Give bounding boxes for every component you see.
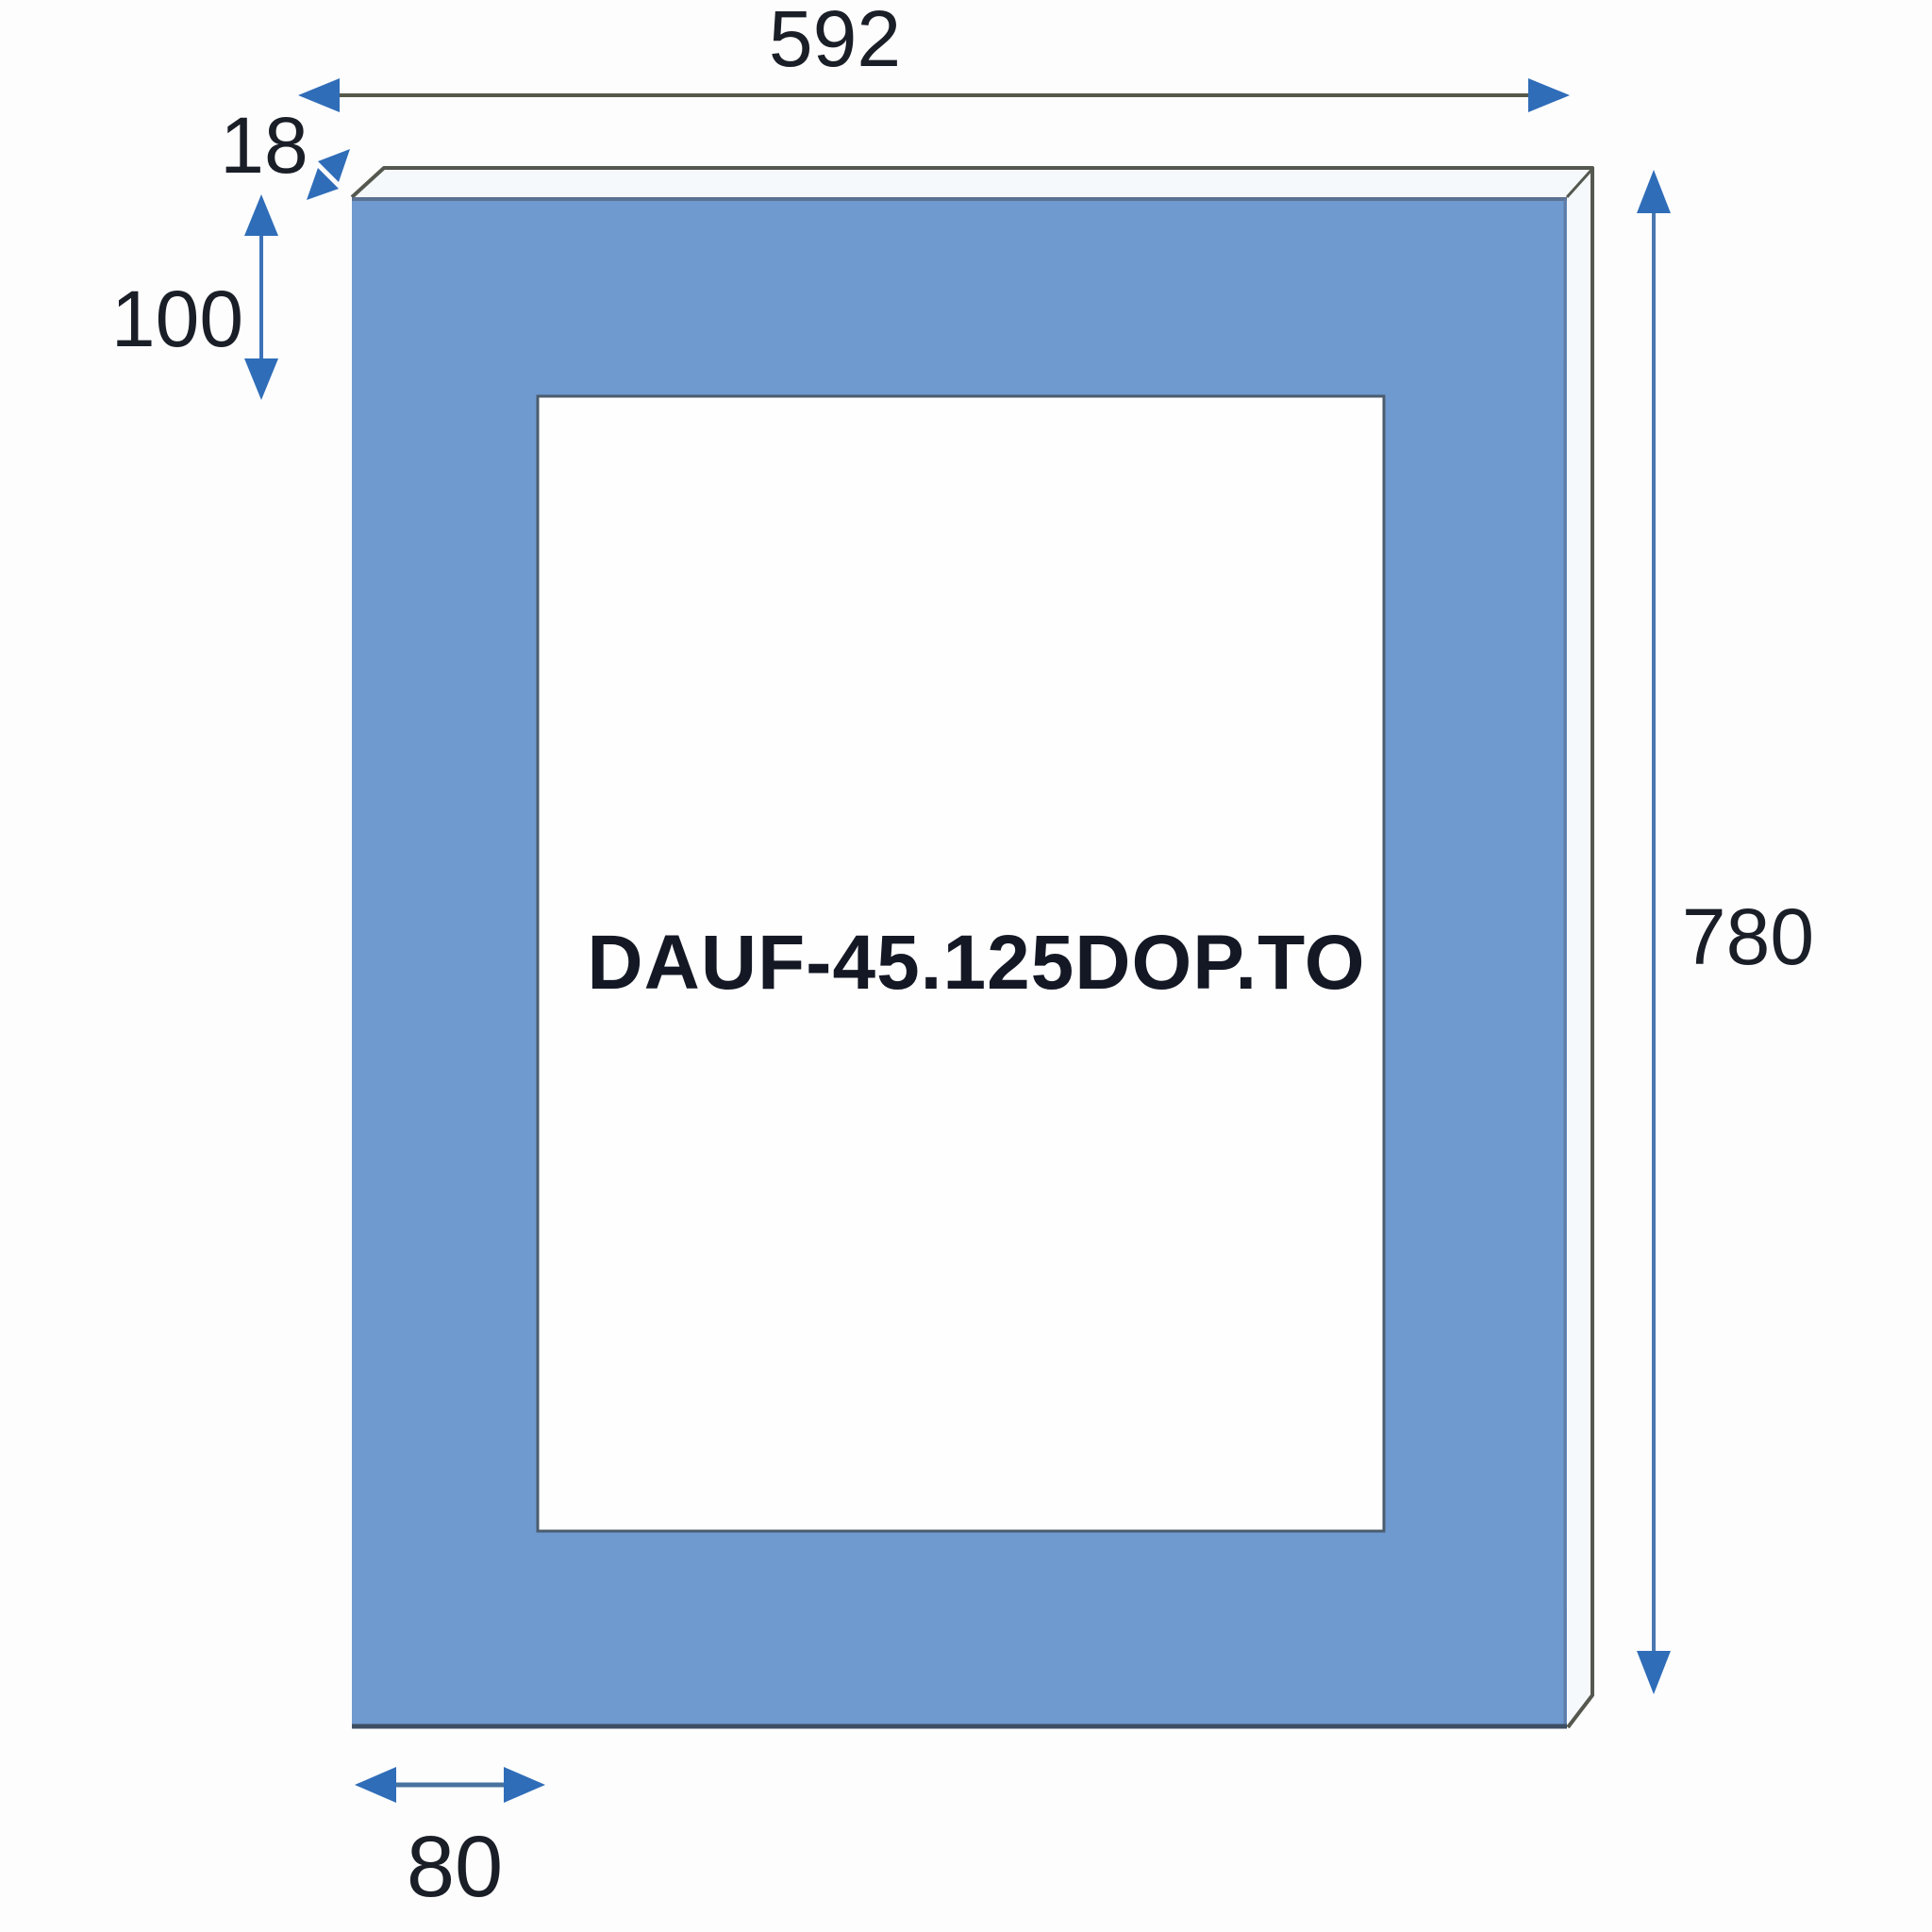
panel-right-edge-face	[1567, 168, 1594, 1728]
dim-label-592: 592	[769, 0, 901, 83]
arrowhead-down-icon	[244, 358, 278, 400]
dim-label-780: 780	[1682, 892, 1814, 981]
dimension-left-stile: 80	[355, 1767, 545, 1915]
diagram-canvas: DAUF-45.125DOP.TO 592 18 100 780	[0, 0, 1932, 1932]
dim-label-18: 18	[220, 101, 308, 190]
part-number-label: DAUF-45.125DOP.TO	[587, 920, 1365, 1006]
dim-label-80: 80	[407, 1819, 503, 1915]
dim-label-100: 100	[111, 275, 243, 363]
dimension-overall-height: 780	[1637, 170, 1814, 1694]
dimension-overall-width: 592	[298, 0, 1570, 112]
arrowhead-up-icon	[244, 194, 278, 236]
dimension-edge-thickness: 18	[220, 101, 350, 200]
arrowhead-left-icon	[355, 1767, 396, 1803]
panel: DAUF-45.125DOP.TO	[352, 168, 1594, 1728]
arrowhead-right-icon	[504, 1767, 545, 1803]
arrowhead-down-icon	[1637, 1651, 1671, 1694]
dimension-top-rail: 100	[111, 194, 278, 400]
technical-drawing: DAUF-45.125DOP.TO 592 18 100 780	[0, 0, 1932, 1932]
arrowhead-right-icon	[1528, 78, 1570, 112]
arrowhead-up-icon	[1637, 170, 1671, 213]
panel-top-edge-face	[352, 168, 1594, 197]
